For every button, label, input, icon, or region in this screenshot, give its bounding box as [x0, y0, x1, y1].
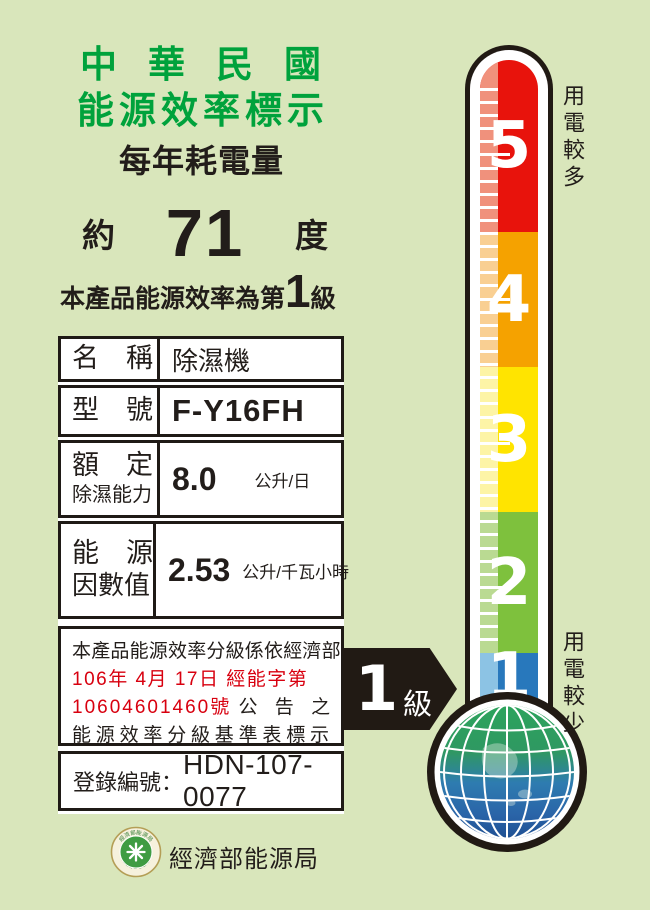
scale-minor-tick: [480, 232, 498, 235]
spec-model-value-cell: F-Y16FH: [160, 388, 341, 434]
scale-minor-tick: [480, 612, 498, 615]
notice-line2: 106年 4月 17日 經能字第: [72, 666, 332, 694]
spec-ef-value: 2.53: [168, 552, 230, 589]
scale-minor-tick: [480, 206, 498, 209]
scale-minor-tick: [480, 573, 498, 576]
consumption-unit: 度: [295, 209, 328, 257]
spec-model-label-cell: 型 號: [61, 388, 160, 434]
efficiency-grade-sentence: 本產品能源效率為第 1 級: [60, 268, 360, 315]
annual-consumption-heading: 每年耗電量: [119, 136, 284, 182]
spec-panel: 名 稱 除濕機 型 號 F-Y16FH 額 定 除濕能力 8.0 公升/日: [58, 336, 344, 814]
scale-minor-tick: [480, 271, 498, 274]
scale-minor-tick: [480, 416, 498, 419]
scale-minor-tick: [480, 481, 498, 484]
scale-minor-tick: [480, 311, 498, 314]
scale-minor-tick: [480, 245, 498, 248]
spec-ef-label-cell: 能 源 因數值: [61, 524, 156, 616]
energy-label: 中華民國 能源效率標示 每年耗電量 約 71 度 本產品能源效率為第 1 級 名…: [0, 0, 650, 910]
scale-minor-tick: [480, 560, 498, 563]
scale-minor-tick: [480, 140, 498, 143]
pointer-grade-value: 1: [355, 658, 398, 720]
scale-minor-tick: [480, 258, 498, 261]
notice-line3: 10604601460號 公 告 之: [72, 694, 332, 722]
registration-label: 登錄編號：: [73, 765, 183, 797]
grade-sentence-suffix: 級: [311, 279, 336, 315]
spec-model-value: F-Y16FH: [172, 393, 305, 429]
scale-minor-tick: [480, 468, 498, 471]
bureau-of-energy-seal-icon: 經濟部能源局 BUREAU OF ENERGY: [110, 826, 162, 878]
scale-minor-tick: [480, 193, 498, 196]
grade-value: 1: [285, 268, 311, 314]
spec-capacity-unit: 公升/日: [254, 467, 310, 492]
spec-ef-label-line1: 能 源: [72, 538, 153, 569]
table-row: 型 號 F-Y16FH: [58, 385, 344, 437]
scale-minor-tick: [480, 324, 498, 327]
spec-capacity-label-line1: 額 定: [72, 450, 157, 481]
table-row: 額 定 除濕能力 8.0 公升/日: [58, 440, 344, 518]
scale-minor-tick: [480, 494, 498, 497]
spec-capacity-label-line2: 除濕能力: [72, 482, 157, 508]
spec-ef-label-line2: 因數值: [72, 569, 153, 602]
spec-capacity-value-cell: 8.0 公升/日: [160, 443, 341, 515]
pointer-grade-suffix: 級: [403, 681, 432, 723]
scale-minor-tick: [480, 533, 498, 536]
scale-minor-tick: [480, 101, 498, 104]
efficiency-thermometer: 54321: [465, 45, 553, 720]
scale-minor-tick: [480, 350, 498, 353]
notice-line1: 本產品能源效率分級係依經濟部: [72, 638, 332, 666]
registration-box: 登錄編號： HDN-107-0077: [58, 751, 344, 811]
scale-minor-tick: [480, 638, 498, 641]
scale-minor-tick: [480, 599, 498, 602]
scale-minor-tick: [480, 363, 498, 366]
spec-name-label-cell: 名 稱: [61, 339, 160, 379]
spec-capacity-label-cell: 額 定 除濕能力: [61, 443, 160, 515]
legal-notice-box: 本產品能源效率分級係依經濟部 106年 4月 17日 經能字第 10604601…: [58, 626, 344, 746]
table-row: 名 稱 除濕機: [58, 336, 344, 382]
scale-major-tick: [480, 153, 510, 156]
scale-minor-tick: [480, 88, 498, 91]
scale-minor-tick: [480, 167, 498, 170]
scale-minor-tick: [480, 337, 498, 340]
scale-minor-tick: [480, 402, 498, 405]
scale-major-tick: [480, 298, 510, 301]
table-row: 能 源 因數值 2.53 公升/千瓦小時: [58, 521, 344, 619]
spec-ef-value-cell: 2.53 公升/千瓦小時: [156, 524, 349, 616]
scale-minor-tick: [480, 547, 498, 550]
notice-line3-red: 10604601460號: [72, 697, 231, 718]
spec-model-label: 型 號: [72, 395, 157, 426]
spec-name-value: 除濕機: [172, 341, 250, 378]
thermometer-scale: 54321: [480, 60, 538, 720]
agency-name: 經濟部能源局: [169, 839, 319, 874]
scale-minor-tick: [480, 127, 498, 130]
scale-minor-tick: [480, 376, 498, 379]
scale-minor-tick: [480, 219, 498, 222]
spec-name-value-cell: 除濕機: [160, 339, 341, 379]
scale-minor-tick: [480, 284, 498, 287]
registration-number: HDN-107-0077: [183, 749, 341, 813]
scale-minor-tick: [480, 520, 498, 523]
consumption-value: 71: [166, 195, 245, 272]
annual-consumption-row: 約 71 度: [62, 200, 344, 266]
grade-sentence-prefix: 本產品能源效率為第: [60, 279, 285, 315]
spec-ef-unit: 公升/千瓦小時: [242, 558, 349, 583]
consumption-prefix: 約: [82, 209, 115, 257]
scale-minor-tick: [480, 389, 498, 392]
spec-name-label: 名 稱: [72, 343, 157, 374]
notice-line4: 能源效率分級基準表標示: [72, 722, 332, 750]
label-title-line2: 能源效率標示: [77, 80, 329, 134]
scale-minor-tick: [480, 455, 498, 458]
scale-minor-tick: [480, 180, 498, 183]
spec-capacity-value: 8.0: [172, 461, 216, 498]
uses-less-power-note: 用電較少: [556, 630, 588, 738]
scale-major-tick: [480, 586, 510, 589]
notice-line3-black: 公 告 之: [239, 697, 337, 718]
scale-major-tick: [480, 442, 510, 445]
scale-minor-tick: [480, 114, 498, 117]
scale-minor-tick: [480, 507, 498, 510]
uses-more-power-note: 用電較多: [556, 84, 588, 192]
scale-minor-tick: [480, 429, 498, 432]
scale-minor-tick: [480, 625, 498, 628]
